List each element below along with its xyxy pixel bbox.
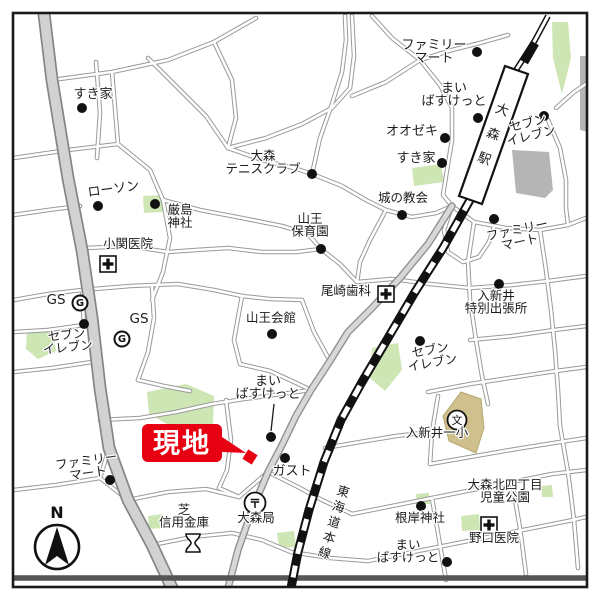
hospital-cross	[106, 259, 109, 270]
street	[428, 367, 586, 392]
poi-label-text: 山王会館	[246, 310, 296, 325]
compass-n-label: N	[50, 503, 63, 522]
site-label: 現地	[153, 429, 211, 460]
poi-dot	[397, 210, 407, 220]
street	[470, 326, 586, 340]
poi-label-sanno-kaikan: 山王会館	[246, 310, 296, 325]
poi-label-familymart-top: ファミリーマート	[401, 38, 466, 66]
hospital-icon	[378, 286, 394, 302]
poi-label-gs-c: GS	[129, 311, 148, 327]
poi-dot	[280, 453, 290, 463]
poi-dot	[267, 329, 277, 339]
poi-label-sukiya-e: すき家	[396, 150, 435, 166]
poi-label-gs-w: GS	[46, 292, 65, 308]
park-area	[541, 485, 553, 497]
leader-line	[271, 404, 274, 431]
poi-dot	[442, 557, 452, 567]
gs-letter: G	[76, 298, 84, 309]
poi-dot	[473, 113, 483, 123]
poi-label-shiro-church: 城の教会	[378, 190, 429, 205]
poi-label-text: ローソン	[87, 178, 141, 200]
poi-dot	[93, 201, 103, 211]
poi-label-text: 城の教会	[378, 190, 429, 205]
poi-label-text: 児童公園	[480, 490, 530, 505]
poi-label-text: 入新井一小	[406, 425, 469, 440]
site-pointer-tip	[242, 449, 257, 464]
railway-track	[291, 200, 470, 588]
street	[352, 60, 420, 96]
poi-label-irisarai-branch: 入新井特別出張所	[465, 288, 528, 316]
hospital-cross	[487, 520, 490, 531]
poi-label-text: テニスクラブ	[225, 161, 301, 176]
poi-label-omori-post: 大森局	[237, 510, 275, 525]
poi-label-sanno-hoikuen: 山王保育園	[291, 211, 329, 239]
hospital-icon	[100, 256, 116, 272]
railway-bridge-solid	[524, 43, 535, 62]
hospital-cross	[384, 289, 387, 300]
poi-label-text: 尾崎歯科	[321, 283, 372, 298]
map-canvas: 大森駅GG〒文すき家ファミリーマートまいばすけっとオオゼキすき家セブンイレブン大…	[0, 0, 600, 600]
poi-label-ozeki: オオゼキ	[386, 124, 438, 139]
street	[228, 16, 354, 148]
poi-label-text: 野口医院	[469, 530, 520, 545]
gas-station-icon: G	[73, 296, 88, 311]
building	[512, 150, 553, 198]
poi-label-gusto: ガスト	[272, 464, 311, 479]
poi-label-koseki-clinic: 小関医院	[103, 236, 154, 251]
park-area	[412, 164, 444, 186]
park-area	[461, 514, 480, 531]
poi-label-text: 神社	[167, 215, 192, 230]
bank-shape	[186, 534, 200, 552]
poi-label-itsukushima: 厳島神社	[167, 202, 192, 230]
poi-label-maibasket-top: まいばすけっと	[421, 81, 486, 109]
poi-dot	[437, 158, 447, 168]
poi-label-text: 特別出張所	[465, 301, 528, 316]
map-content: 大森駅GG〒文すき家ファミリーマートまいばすけっとオオゼキすき家セブンイレブン大…	[14, 14, 588, 588]
street	[138, 286, 154, 380]
poi-label-text: 信用金庫	[159, 515, 209, 530]
street	[357, 210, 386, 282]
poi-label-noguchi-clinic: 野口医院	[469, 530, 520, 545]
map-page: 大森駅GG〒文すき家ファミリーマートまいばすけっとオオゼキすき家セブンイレブン大…	[0, 0, 600, 600]
poi-label-text: GS	[46, 292, 65, 308]
poi-label-text: すき家	[73, 86, 112, 102]
poi-label-text: ばすけっと	[421, 94, 486, 109]
post-mark: 〒	[249, 497, 261, 511]
street	[14, 362, 92, 372]
poi-label-text: 根岸神社	[395, 510, 445, 525]
poi-label-text: 保育園	[291, 224, 329, 239]
poi-label-maibasket-s: まいばすけっと	[377, 537, 440, 565]
poi-label-lawson: ローソン	[87, 178, 141, 200]
poi-label-text: ばすけっと	[377, 550, 440, 565]
poi-dot	[150, 199, 160, 209]
poi-label-irisarai-elem: 入新井一小	[406, 425, 469, 440]
poi-label-shiba-shinkin: 芝信用金庫	[159, 502, 209, 530]
poi-label-seveneleven-w: セブンイレブン	[41, 324, 94, 357]
poi-label-jido-koen: 大森北四丁目児童公園	[467, 477, 542, 505]
compass: N	[35, 503, 79, 569]
poi-label-text: マート	[414, 51, 453, 66]
poi-dot	[266, 432, 276, 442]
poi-label-text: ばすけっと	[235, 387, 300, 402]
site-pointer	[222, 437, 246, 453]
site-marker: 現地	[142, 424, 258, 465]
poi-dot	[440, 133, 450, 143]
park-area	[552, 22, 571, 94]
rail-line-label: 東海道本線	[316, 482, 352, 561]
poi-label-text: すき家	[396, 150, 435, 166]
poi-dot	[472, 47, 482, 57]
poi-label-ozaki-dental: 尾崎歯科	[321, 283, 372, 298]
poi-label-sukiya-nw: すき家	[73, 86, 112, 102]
gs-letter: G	[118, 334, 126, 345]
poi-dot	[316, 244, 326, 254]
gas-station-icon: G	[115, 332, 130, 347]
poi-label-negishi-shrine: 根岸神社	[395, 510, 445, 525]
railway-track	[291, 200, 470, 588]
poi-dot	[77, 103, 87, 113]
poi-dot	[307, 169, 317, 179]
poi-label-text: ガスト	[272, 464, 311, 479]
street	[302, 300, 330, 361]
poi-label-text: GS	[129, 311, 148, 327]
poi-label-seveneleven-se: セブンイレブン	[404, 338, 458, 374]
poi-label-text: オオゼキ	[386, 124, 438, 139]
poi-label-text: 小関医院	[103, 236, 154, 251]
poi-dot	[489, 214, 499, 224]
bank-icon	[186, 534, 200, 552]
poi-label-text: 大森局	[237, 510, 275, 525]
